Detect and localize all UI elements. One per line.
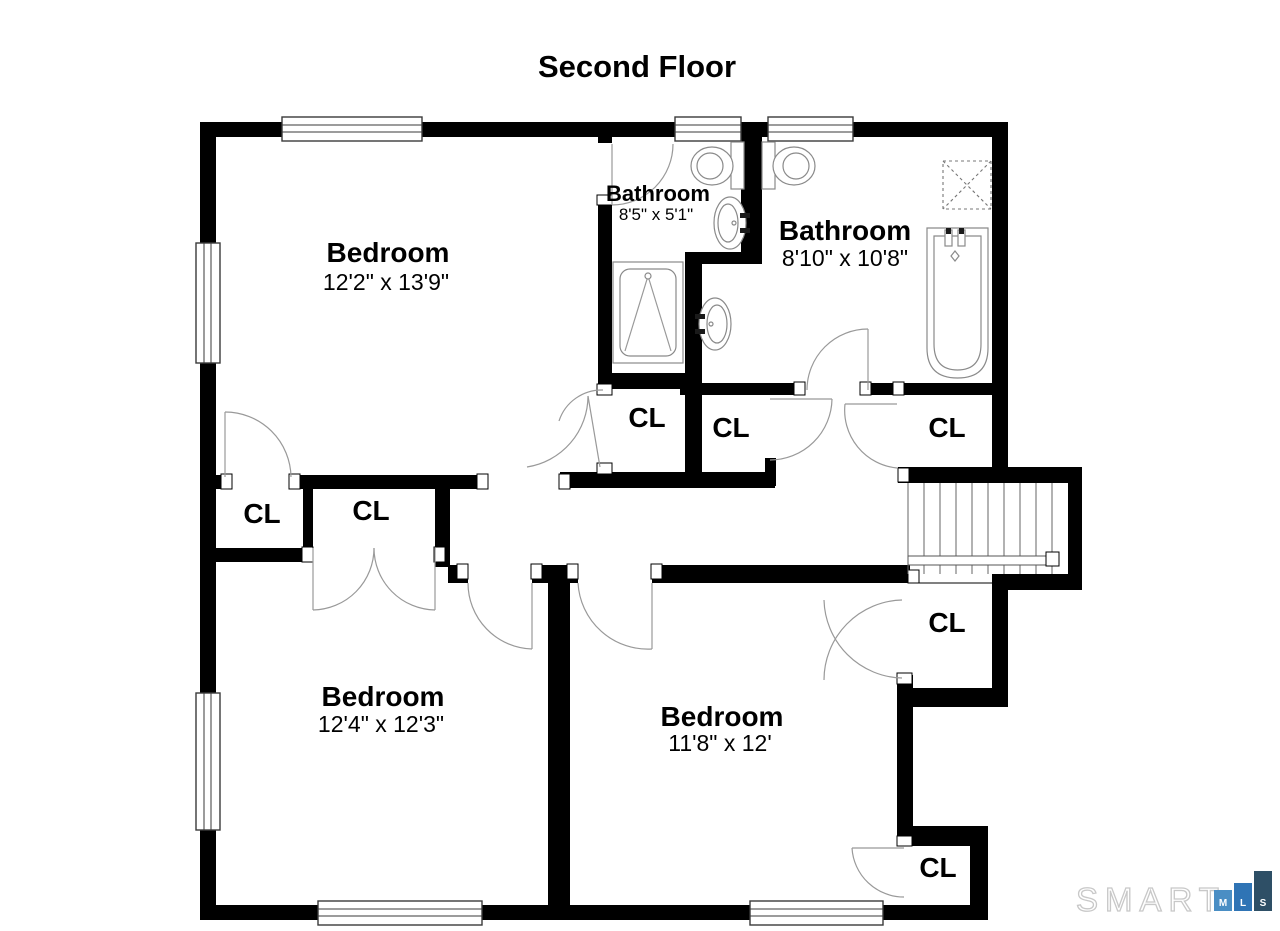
room-dims: 12'4" x 12'3" bbox=[318, 711, 444, 737]
closet-label: CL bbox=[712, 412, 749, 443]
toilet-icon bbox=[762, 142, 815, 189]
window bbox=[282, 117, 422, 141]
room-name: Bedroom bbox=[661, 701, 784, 732]
smartmls-logo: SMART M L S bbox=[1076, 871, 1272, 918]
room-label-bathroom-small: Bathroom 8'5" x 5'1" bbox=[606, 181, 710, 224]
shower-stall-icon bbox=[613, 262, 683, 363]
door-bedroom-bottom-right bbox=[578, 583, 652, 649]
room-name: Bathroom bbox=[606, 181, 710, 206]
door-closet-bottom-right bbox=[852, 848, 904, 897]
plan-title: Second Floor bbox=[538, 49, 736, 84]
room-dims: 8'10" x 10'8" bbox=[782, 245, 908, 271]
room-label-bedroom-bottom-right: Bedroom 11'8" x 12' bbox=[661, 701, 784, 756]
bathtub-icon bbox=[927, 228, 988, 378]
closet-label: CL bbox=[352, 495, 389, 526]
room-dims: 12'2" x 13'9" bbox=[323, 269, 449, 295]
window bbox=[675, 117, 741, 141]
door-bedroom-top-left bbox=[527, 390, 603, 467]
closet-label: CL bbox=[928, 607, 965, 638]
door-closet-middle bbox=[770, 399, 832, 460]
door-bathroom-large bbox=[807, 329, 868, 390]
door-closet-right-middle bbox=[824, 600, 902, 680]
room-label-bedroom-bottom-left: Bedroom 12'4" x 12'3" bbox=[318, 681, 445, 737]
room-name: Bathroom bbox=[779, 215, 911, 246]
window bbox=[750, 901, 883, 925]
window bbox=[196, 693, 220, 830]
closet-label: CL bbox=[628, 402, 665, 433]
floor-plan-image: Second Floor bbox=[0, 0, 1280, 931]
room-dims: 8'5" x 5'1" bbox=[619, 205, 693, 224]
staircase bbox=[908, 483, 1059, 574]
logo-brand-text: SMART bbox=[1076, 881, 1226, 918]
window bbox=[196, 243, 220, 363]
closet-label: CL bbox=[243, 498, 280, 529]
closet-label: CL bbox=[919, 852, 956, 883]
room-name: Bedroom bbox=[322, 681, 445, 712]
room-dims: 11'8" x 12' bbox=[668, 730, 771, 756]
closet-label: CL bbox=[928, 412, 965, 443]
door-closet-left bbox=[225, 412, 291, 477]
logo-letter-m: M bbox=[1219, 898, 1227, 909]
logo-letter-l: L bbox=[1240, 898, 1246, 909]
door-closet-right-top bbox=[845, 404, 897, 468]
window bbox=[768, 117, 853, 141]
door-bedroom-bottom-left bbox=[468, 583, 532, 649]
room-label-bedroom-top-left: Bedroom 12'2" x 13'9" bbox=[323, 237, 450, 295]
door-closet-double bbox=[313, 548, 435, 610]
floor-plan-page: Second Floor bbox=[0, 0, 1280, 931]
shower-pan-icon bbox=[943, 161, 991, 209]
room-label-bathroom-large: Bathroom 8'10" x 10'8" bbox=[779, 215, 911, 271]
logo-letter-s: S bbox=[1260, 898, 1267, 909]
room-name: Bedroom bbox=[327, 237, 450, 268]
window bbox=[318, 901, 482, 925]
